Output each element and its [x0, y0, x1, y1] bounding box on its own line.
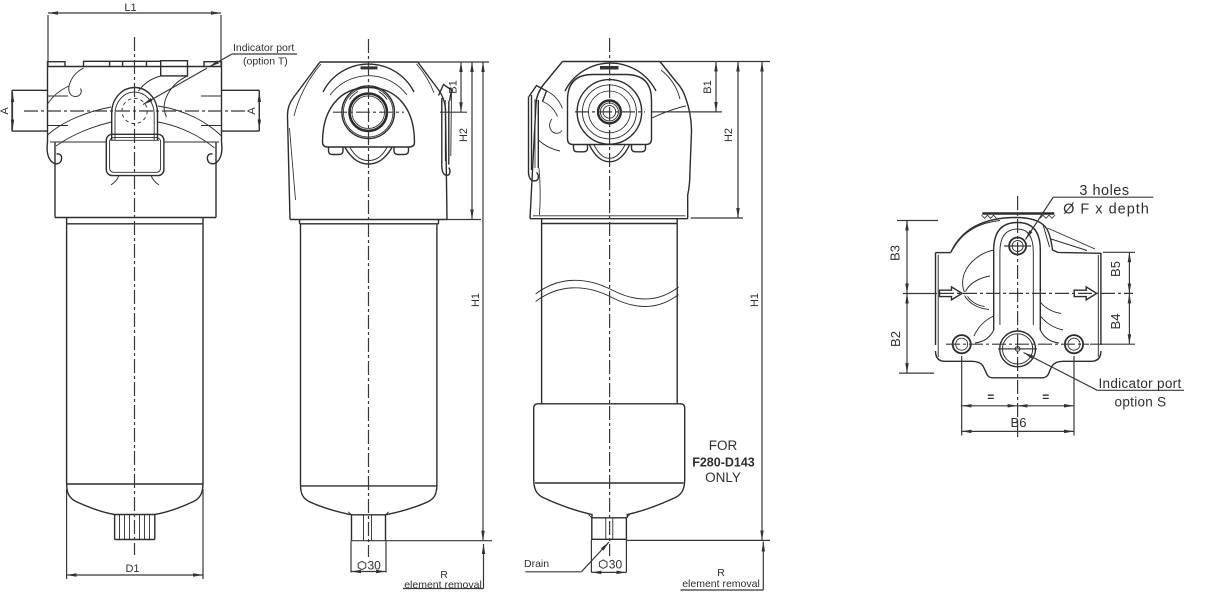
svg-text:3 holes: 3 holes	[1079, 183, 1129, 199]
svg-text:option S: option S	[1115, 395, 1167, 410]
svg-text:element removal: element removal	[404, 579, 482, 591]
svg-text:B5: B5	[1108, 261, 1123, 277]
svg-text:L1: L1	[124, 2, 136, 14]
svg-text:Drain: Drain	[524, 558, 549, 570]
svg-text:B6: B6	[1011, 415, 1027, 430]
svg-text:A: A	[246, 107, 258, 115]
svg-text:FOR: FOR	[709, 438, 738, 453]
svg-text:H1: H1	[749, 293, 761, 307]
svg-text:Indicator port: Indicator port	[1099, 376, 1182, 391]
svg-text:Indicator port: Indicator port	[233, 42, 294, 54]
svg-text:F280-D143: F280-D143	[692, 456, 755, 470]
svg-text:B1: B1	[702, 80, 714, 93]
svg-text:H1: H1	[470, 293, 482, 307]
svg-text:=: =	[987, 390, 994, 404]
svg-text:A: A	[0, 107, 11, 115]
svg-text:B4: B4	[1108, 314, 1123, 330]
svg-text:(option T): (option T)	[243, 56, 288, 68]
svg-text:=: =	[1042, 390, 1049, 404]
svg-text:B3: B3	[888, 245, 903, 261]
svg-text:H2: H2	[458, 128, 470, 142]
svg-text:H2: H2	[723, 128, 735, 142]
svg-text:ONLY: ONLY	[705, 470, 741, 485]
svg-text:30: 30	[368, 559, 382, 573]
svg-text:Ø F x depth: Ø F x depth	[1063, 202, 1150, 218]
svg-text:element removal: element removal	[682, 578, 760, 590]
svg-text:B2: B2	[888, 331, 903, 347]
svg-text:B1: B1	[448, 80, 460, 93]
svg-text:D1: D1	[125, 563, 139, 575]
svg-text:30: 30	[609, 558, 623, 572]
